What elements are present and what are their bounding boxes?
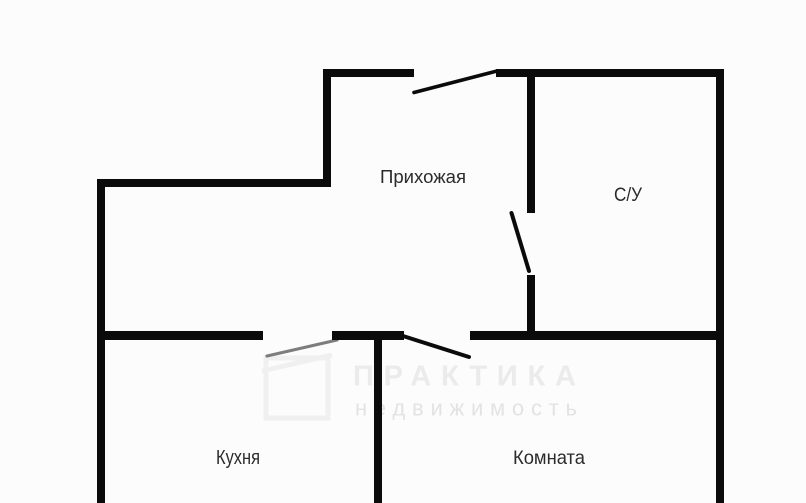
svg-text:Прихожая: Прихожая <box>380 167 466 187</box>
svg-text:С/У: С/У <box>614 185 643 206</box>
svg-text:Кухня: Кухня <box>216 447 260 469</box>
svg-text:Комната: Комната <box>513 447 585 469</box>
